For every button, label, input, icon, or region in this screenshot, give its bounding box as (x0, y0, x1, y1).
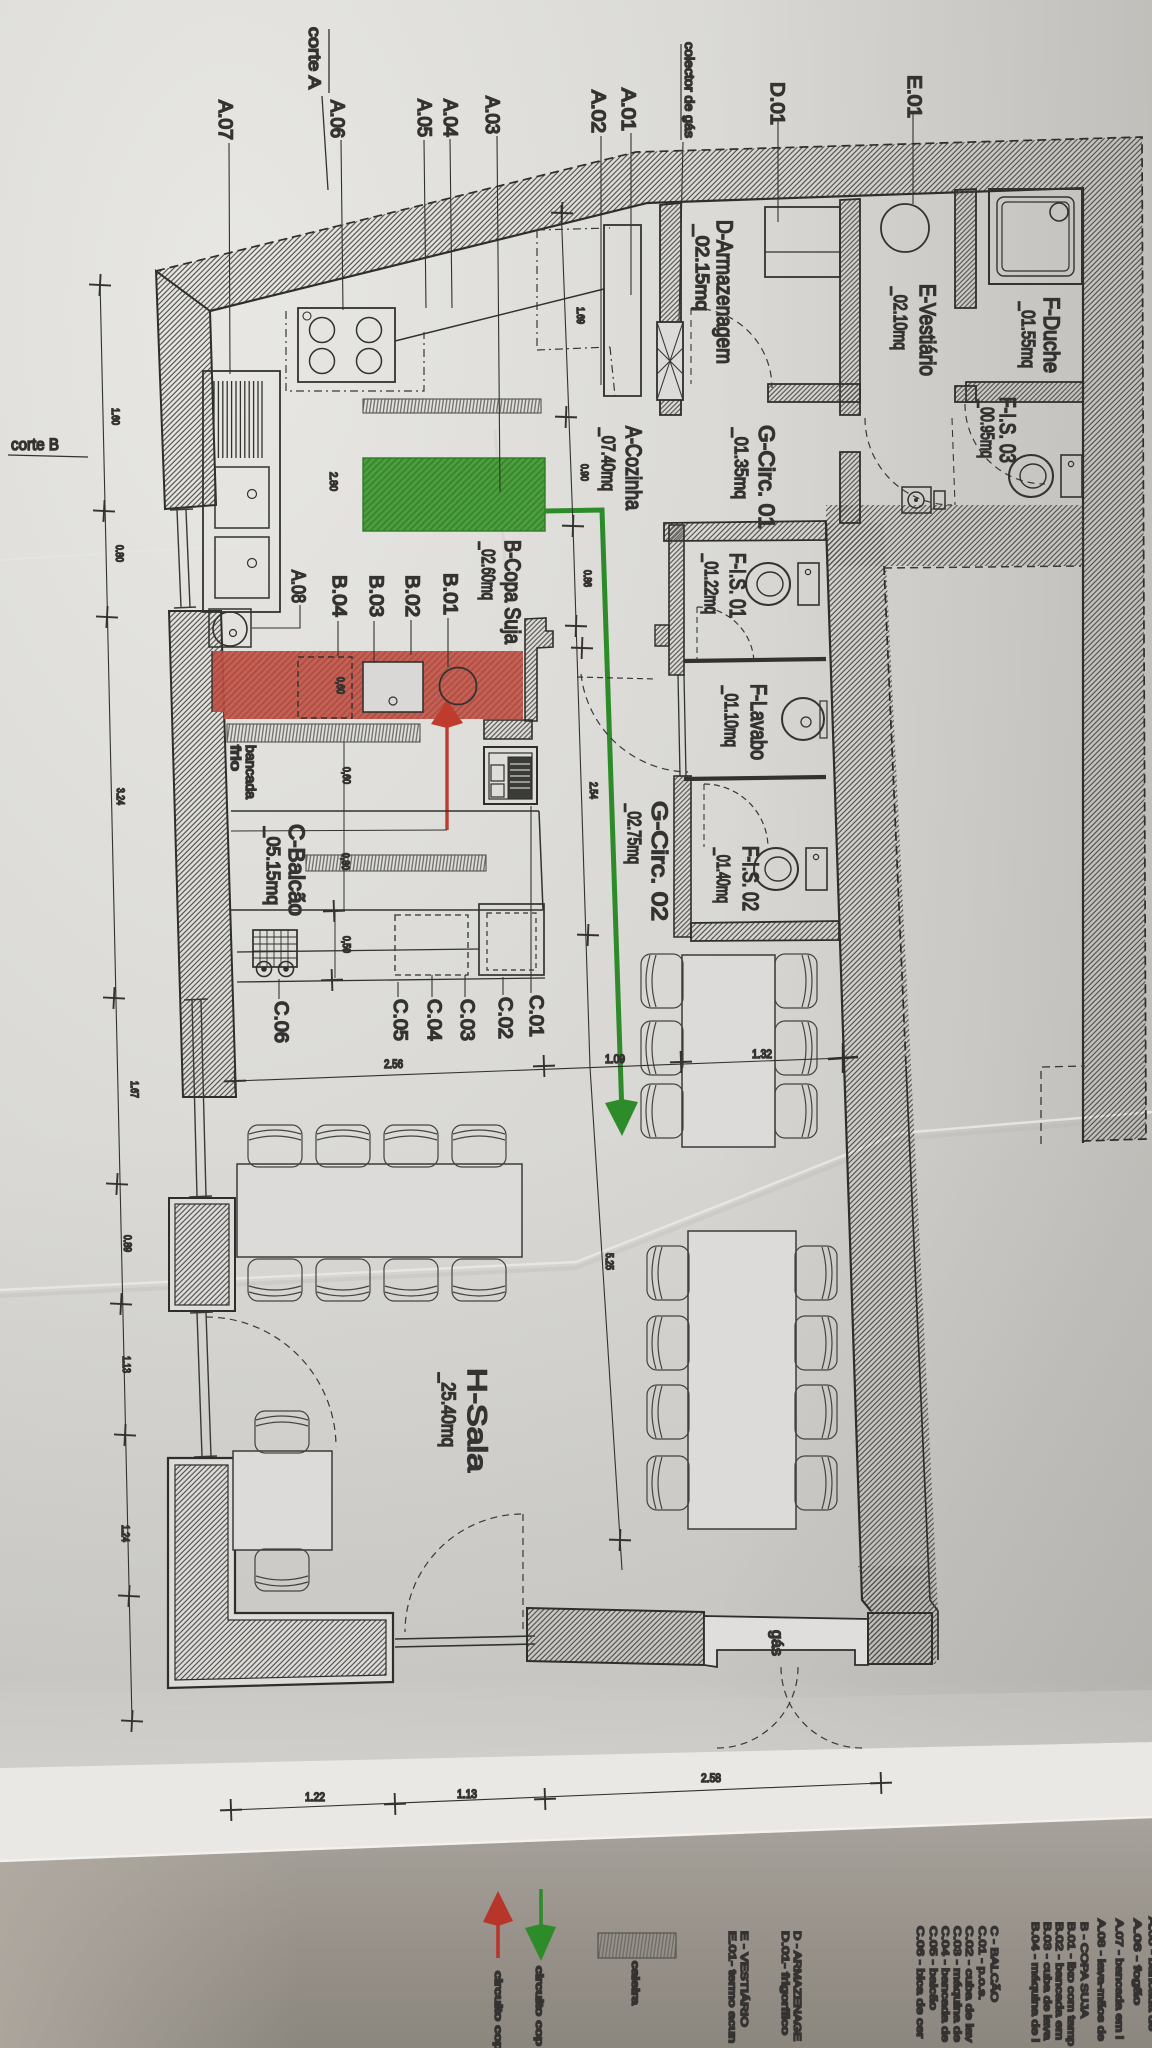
svg-text:B-Copa Suja: B-Copa Suja (500, 540, 525, 644)
svg-text:2.58: 2.58 (701, 1773, 721, 1785)
svg-text:C.04: C.04 (423, 999, 444, 1041)
svg-text:0,50: 0,50 (340, 936, 352, 953)
svg-text:1.22: 1.22 (305, 1792, 325, 1804)
svg-text:1.13: 1.13 (120, 1356, 132, 1373)
svg-text:_02.15mq: _02.15mq (691, 224, 712, 311)
svg-text:D.01- frigorífico: D.01- frigorífico (779, 1931, 790, 2036)
svg-text:circuito cop: circuito cop (533, 1966, 544, 2047)
svg-text:A.06: A.06 (326, 100, 347, 138)
svg-text:B.02: B.02 (401, 575, 422, 617)
svg-text:1.09: 1.09 (605, 1054, 625, 1066)
svg-text:B.02 - bancada em: B.02 - bancada em (1053, 1922, 1064, 2040)
svg-text:_00.95mq: _00.95mq (976, 399, 997, 458)
svg-text:F-Lavabo: F-Lavabo (746, 684, 771, 760)
svg-text:1.13: 1.13 (457, 1789, 477, 1801)
svg-text:C - BALCÃO: C - BALCÃO (988, 1926, 999, 2003)
svg-text:1.32: 1.32 (752, 1049, 772, 1061)
svg-text:C.03: C.03 (456, 999, 477, 1041)
svg-text:C.02 - cuba de lav: C.02 - cuba de lav (963, 1926, 974, 2042)
svg-text:A.07: A.07 (214, 100, 235, 140)
svg-text:_02.75mq: _02.75mq (623, 803, 644, 864)
svg-text:1.67: 1.67 (128, 1081, 140, 1098)
svg-text:E.01- termo acun: E.01- termo acun (726, 1931, 737, 2043)
svg-text:B - COPA SUJA: B - COPA SUJA (1078, 1922, 1089, 2019)
svg-text:A.05: A.05 (413, 99, 434, 137)
svg-text:C.06: C.06 (270, 1001, 291, 1043)
svg-text:C.06 - bica de cer: C.06 - bica de cer (914, 1926, 925, 2039)
svg-text:A.06 - fogão: A.06 - fogão (1131, 1919, 1142, 2006)
svg-text:C.01 - p.o.s.: C.01 - p.o.s. (976, 1926, 987, 2000)
svg-text:_01.10mq: _01.10mq (720, 685, 741, 747)
svg-text:0,80: 0,80 (339, 853, 351, 870)
svg-text:_25.40mq: _25.40mq (437, 1372, 458, 1447)
svg-text:F-I.S. 03: F-I.S. 03 (995, 397, 1020, 463)
svg-text:_01.22mq: _01.22mq (700, 553, 721, 614)
svg-text:F-I.S. 02: F-I.S. 02 (738, 846, 763, 911)
svg-text:C.05 - balcão: C.05 - balcão (927, 1926, 938, 2011)
svg-text:D - ARMAZENAGE: D - ARMAZENAGE (791, 1931, 802, 2042)
svg-text:A.04: A.04 (439, 99, 460, 137)
svg-text:H-Sala: H-Sala (462, 1368, 492, 1473)
svg-text:colector de gás: colector de gás (682, 42, 697, 139)
svg-text:B.01: B.01 (439, 573, 460, 615)
svg-text:0.80: 0.80 (113, 545, 125, 562)
svg-text:corte B: corte B (11, 435, 59, 454)
svg-text:3.24: 3.24 (114, 788, 126, 805)
svg-text:_01.55mq: _01.55mq (1017, 301, 1038, 368)
svg-text:B.01 - lixo com tamp: B.01 - lixo com tamp (1065, 1922, 1076, 2047)
svg-text:_05.15mq: _05.15mq (262, 826, 283, 905)
svg-text:A.02: A.02 (587, 90, 608, 133)
svg-text:A.01: A.01 (617, 88, 638, 131)
svg-text:A.05 - bancada de: A.05 - bancada de (1146, 1917, 1152, 2032)
svg-text:F-Duche: F-Duche (1039, 297, 1064, 373)
svg-text:D-Armazenagem: D-Armazenagem (712, 220, 737, 364)
svg-text:0.86: 0.86 (581, 570, 593, 587)
svg-text:A.08 - lava-mãos de: A.08 - lava-mãos de (1095, 1919, 1106, 2042)
svg-text:1.69: 1.69 (574, 307, 586, 324)
svg-text:0.89: 0.89 (121, 1235, 133, 1252)
svg-text:F-I.S. 01: F-I.S. 01 (725, 553, 750, 618)
svg-text:0,60: 0,60 (334, 677, 346, 694)
svg-text:caleira: caleira (629, 1961, 640, 2006)
svg-text:A-Cozinha: A-Cozinha (621, 426, 646, 510)
svg-text:C.02: C.02 (494, 997, 515, 1039)
svg-text:_01.35mq: _01.35mq (730, 427, 751, 499)
svg-text:B.04 - máquina de l: B.04 - máquina de l (1029, 1922, 1040, 2042)
svg-text:B.03 - cuba de lava: B.03 - cuba de lava (1041, 1922, 1052, 2041)
svg-text:B.04: B.04 (328, 575, 349, 617)
svg-text:C.03 - máquina de: C.03 - máquina de (951, 1926, 962, 2043)
svg-text:_02.60mq: _02.60mq (477, 541, 498, 600)
svg-text:C-Balcão: C-Balcão (284, 824, 309, 916)
svg-text:D.01: D.01 (766, 82, 787, 125)
svg-text:_01.40mq: _01.40mq (712, 847, 733, 903)
svg-text:5.25: 5.25 (603, 1253, 615, 1270)
svg-text:bancada: bancada (243, 745, 259, 799)
svg-text:C.04 - bancada de: C.04 - bancada de (939, 1926, 950, 2043)
svg-text:0.90: 0.90 (578, 464, 590, 481)
svg-text:0,60: 0,60 (340, 767, 352, 784)
svg-text:2.56: 2.56 (384, 1059, 403, 1071)
svg-text:2.80: 2.80 (327, 472, 339, 491)
svg-text:C.05: C.05 (389, 999, 410, 1041)
svg-text:gás: gás (768, 1630, 785, 1656)
svg-text:A.07 - bancada em l: A.07 - bancada em l (1113, 1919, 1124, 2039)
svg-text:_07.40mq: _07.40mq (597, 427, 618, 491)
svg-text:G-Circ. 02: G-Circ. 02 (647, 801, 672, 921)
svg-text:_02.10mq: _02.10mq (889, 286, 910, 350)
svg-text:1.60: 1.60 (109, 408, 121, 425)
svg-text:G-Circ. 01: G-Circ. 01 (754, 425, 779, 529)
svg-text:B.03: B.03 (365, 575, 386, 617)
svg-text:corte A: corte A (305, 27, 324, 90)
svg-text:frio: frio (228, 745, 244, 771)
svg-text:2.54: 2.54 (587, 782, 599, 799)
svg-text:1.24: 1.24 (119, 1525, 131, 1542)
svg-text:E.01: E.01 (903, 75, 924, 118)
svg-text:A.03: A.03 (481, 96, 502, 134)
svg-text:E-Vestiário: E-Vestiário (915, 284, 940, 376)
svg-text:E - VESTIÁRIO: E - VESTIÁRIO (738, 1931, 749, 2028)
svg-text:circuito cop: circuito cop (492, 1971, 503, 2048)
svg-text:A.08: A.08 (287, 570, 308, 603)
svg-text:C.01: C.01 (525, 995, 546, 1037)
